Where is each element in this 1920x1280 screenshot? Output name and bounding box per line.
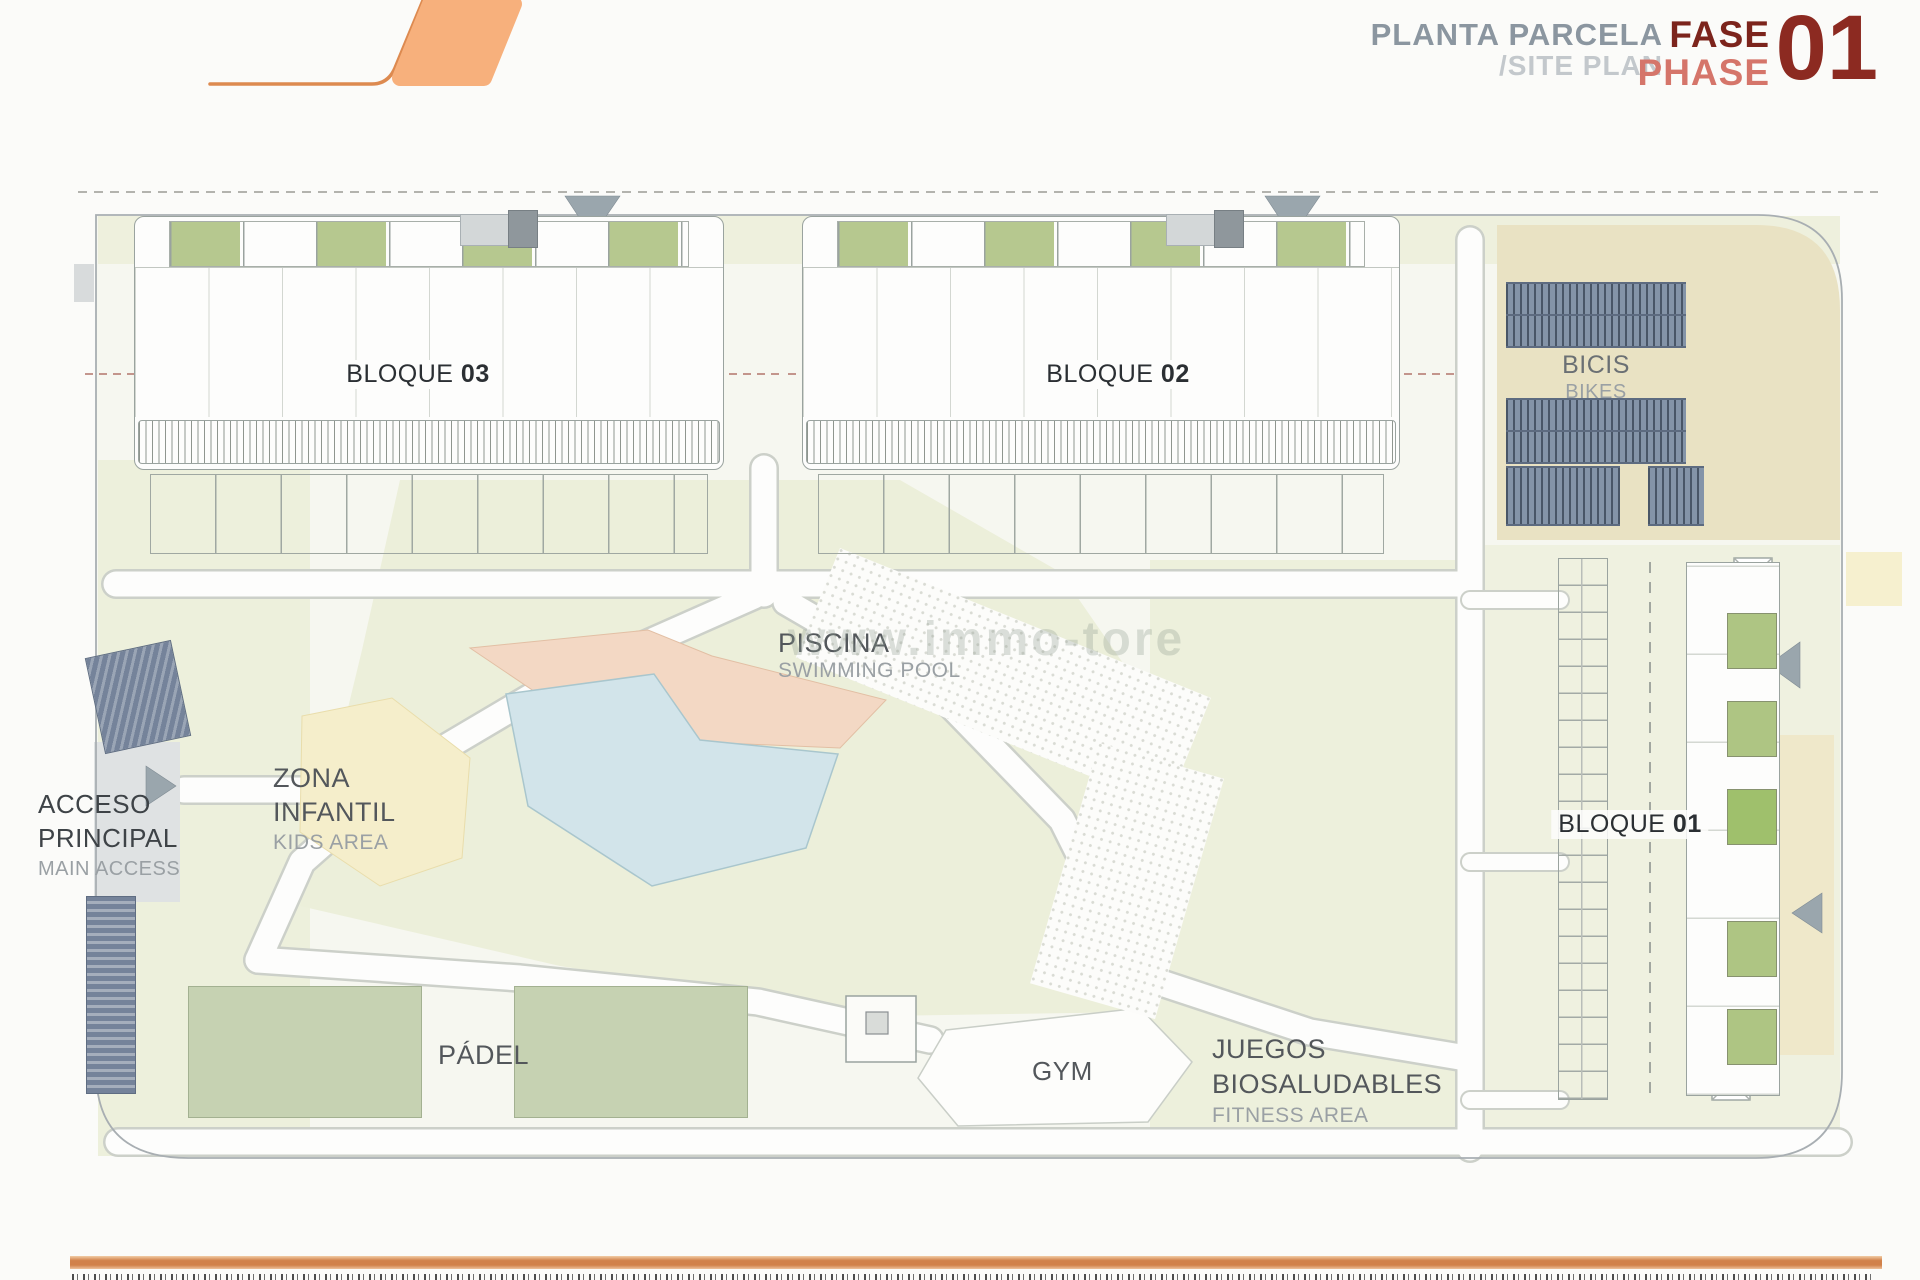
elevator-core (1214, 210, 1244, 248)
equipment-square (846, 996, 916, 1062)
bloque-02-label: BLOQUE 02 (1039, 360, 1196, 389)
watermark: www.immo-tore (788, 612, 1185, 667)
bike-rack (1648, 466, 1704, 526)
block-name: BLOQUE (346, 360, 453, 388)
elevator-core (508, 210, 538, 248)
garden-plots-bloque-03 (150, 474, 708, 554)
bike-rack (1506, 466, 1620, 526)
acceso-en: MAIN ACCESS (38, 856, 180, 882)
elevator-core (460, 214, 510, 246)
site-plan-page: BLOQUE 03 BLOQUE 02 BLOQUE 01 BICIS BIKE… (0, 0, 1920, 1280)
unit-band (803, 267, 1399, 417)
acceso-line1: ACCESO (38, 788, 180, 822)
terrace (1727, 1009, 1777, 1065)
padel-label: PÁDEL (438, 1040, 529, 1071)
block-number: 03 (461, 360, 490, 388)
logo-shape (400, 4, 514, 78)
block-name: BLOQUE (1558, 810, 1665, 838)
phase-label-es: FASE (1638, 16, 1770, 54)
terrace (1727, 921, 1777, 977)
zona-en: KIDS AREA (273, 830, 396, 856)
terrace-row (169, 221, 689, 267)
balcony-strip (138, 420, 720, 464)
bike-rack (1506, 282, 1686, 316)
street-parking (86, 896, 136, 1094)
bike-rack (1506, 430, 1686, 464)
terrace (1727, 789, 1777, 845)
logo-stroke (210, 0, 424, 84)
footer-orange-bar (70, 1256, 1882, 1269)
gym-es: GYM (1032, 1056, 1093, 1086)
block-name: BLOQUE (1046, 360, 1153, 388)
bicis-es: BICIS (1562, 350, 1630, 380)
acceso-label: ACCESO PRINCIPAL MAIN ACCESS (38, 788, 180, 882)
bicis-label: BICIS BIKES (1562, 350, 1630, 404)
bicis-en: BIKES (1562, 380, 1630, 404)
bike-rack (1506, 314, 1686, 348)
zona-line2: INFANTIL (273, 796, 396, 830)
zona-line1: ZONA (273, 762, 396, 796)
bloque-01-label: BLOQUE 01 (1551, 810, 1708, 839)
zona-infantil-label: ZONA INFANTIL KIDS AREA (273, 762, 396, 856)
building-bloque-02 (802, 216, 1400, 470)
padel-court-2 (514, 986, 748, 1118)
padel-court-1 (188, 986, 422, 1118)
building-bloque-03 (134, 216, 724, 470)
gym-label: GYM (1032, 1056, 1093, 1087)
juegos-en: FITNESS AREA (1212, 1102, 1442, 1129)
logo (0, 0, 560, 110)
phase-label-en: PHASE (1638, 54, 1770, 92)
balcony-strip (806, 420, 1396, 464)
plan-title-block: PLANTA PARCELA /SITE PLAN (1371, 18, 1663, 82)
phase-label-block: FASE PHASE (1638, 16, 1770, 93)
block-number: 01 (1673, 810, 1702, 838)
plan-title: PLANTA PARCELA (1371, 18, 1663, 51)
phase-number: 01 (1776, 2, 1878, 94)
garden-plots-bloque-02 (818, 474, 1384, 554)
bloque-03-label: BLOQUE 03 (339, 360, 496, 389)
plan-subtitle: /SITE PLAN (1371, 51, 1663, 81)
terrace (1727, 701, 1777, 757)
padel-es: PÁDEL (438, 1040, 529, 1070)
curb-block (74, 264, 94, 302)
acceso-line2: PRINCIPAL (38, 822, 180, 856)
juegos-line2: BIOSALUDABLES (1212, 1067, 1442, 1102)
block-number: 02 (1161, 360, 1190, 388)
cropped-caption-strip (72, 1274, 1872, 1280)
unit-band (135, 267, 723, 417)
terrace-row (837, 221, 1365, 267)
juegos-line1: JUEGOS (1212, 1032, 1442, 1067)
terrace (1727, 613, 1777, 669)
juegos-label: JUEGOS BIOSALUDABLES FITNESS AREA (1212, 1032, 1442, 1129)
elevator-core (1166, 214, 1216, 246)
